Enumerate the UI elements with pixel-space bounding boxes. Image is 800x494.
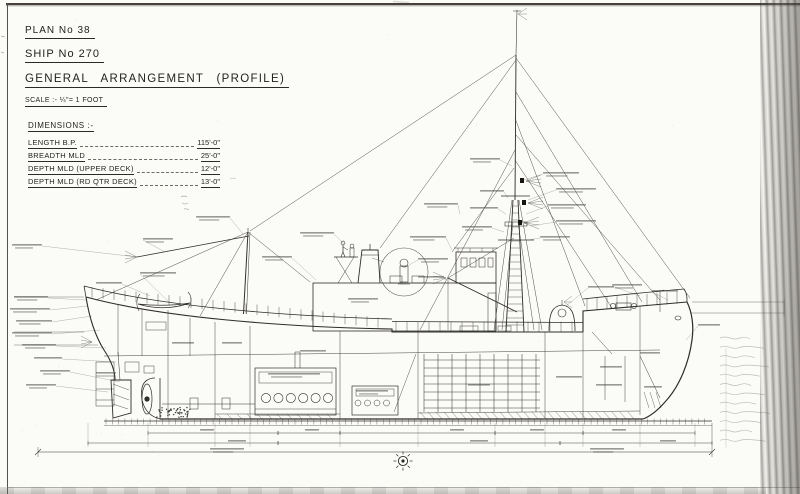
main-mast [448, 10, 534, 332]
masthead-light [520, 178, 524, 183]
masthead-light [518, 220, 522, 225]
compass-detail-circle [380, 248, 428, 296]
registration-stamp [393, 451, 412, 470]
ship-profile-drawing [0, 0, 800, 494]
masthead-light [522, 200, 526, 205]
pencil-marks [1, 2, 409, 211]
drawing-sheet: PLAN No 38 SHIP No 270 GENERAL ARRANGEME… [0, 0, 800, 494]
foredeck-fittings [610, 290, 681, 320]
wheelhouse [456, 252, 496, 283]
mizzen-mast [96, 228, 310, 316]
datum-lines [14, 297, 784, 345]
machinery [162, 352, 398, 415]
hull [84, 286, 693, 419]
trawl-gallows [549, 300, 575, 331]
